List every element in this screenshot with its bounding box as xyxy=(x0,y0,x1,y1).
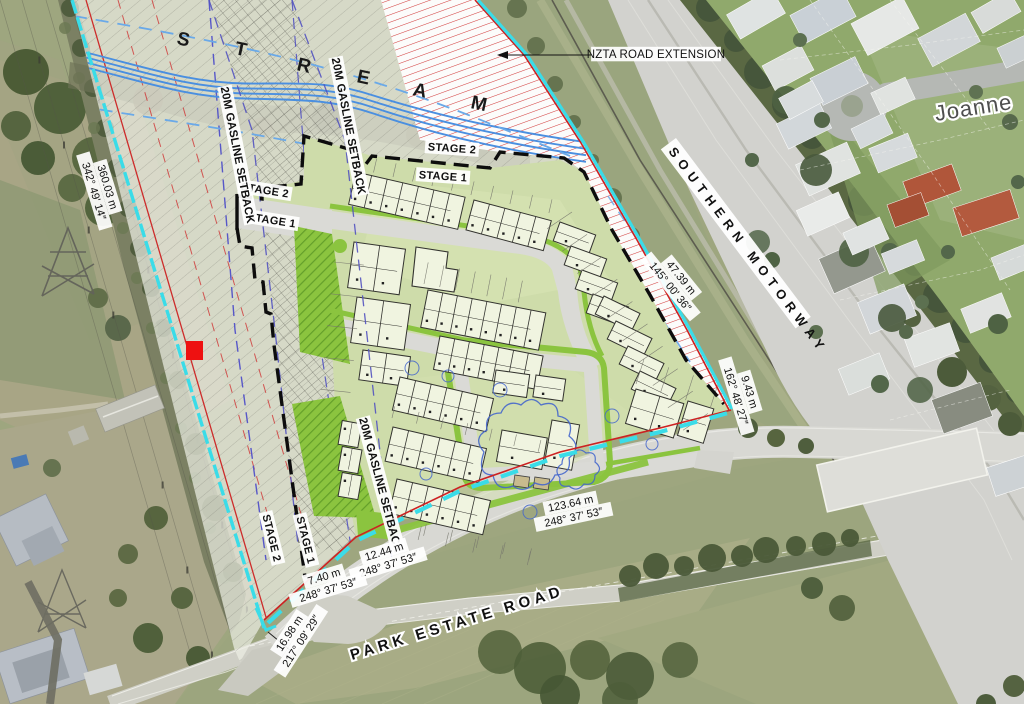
svg-text:NZTA ROAD EXTENSION: NZTA ROAD EXTENSION xyxy=(587,49,725,61)
